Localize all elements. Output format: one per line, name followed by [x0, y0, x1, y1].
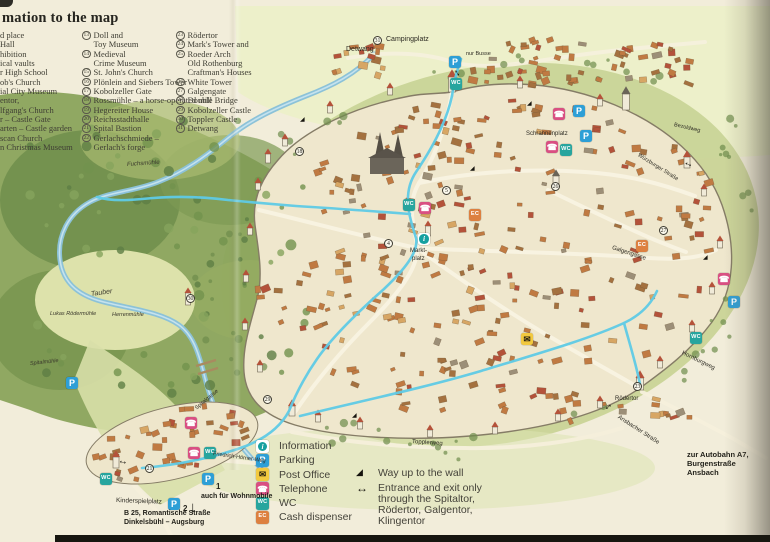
cash-dispenser-icon: EC: [256, 511, 269, 524]
map-number-marker: 30: [186, 294, 195, 303]
wc-icon: WC: [690, 332, 702, 344]
map-label: Rödertor: [615, 396, 638, 402]
entrance-note: ↔ Entrance and exit onlythrough the Spit…: [356, 483, 482, 527]
wall-access-icon: ◢: [356, 467, 370, 478]
legend-item-number: 30: [176, 115, 185, 124]
telephone-icon: ☎: [419, 202, 431, 214]
wc-icon: WC: [560, 144, 572, 156]
map-number-marker: 31: [373, 36, 382, 45]
wall-access-note: ◢ Way up to the wall: [356, 467, 482, 479]
map-label: platz: [412, 256, 425, 262]
legend-item: 31 Detwang: [176, 124, 252, 133]
legend-item-number: 26: [176, 78, 185, 87]
map-number-marker: 18: [295, 147, 304, 156]
legend-item-number: 28: [176, 96, 185, 105]
map-label: ◢: [470, 165, 475, 172]
telephone-icon: ☎: [718, 273, 730, 285]
key-item: i Information: [256, 440, 352, 453]
legend-item-number: 27: [176, 87, 185, 96]
parking-icon: P: [580, 130, 592, 142]
map-label: auch für Wohnmobile: [201, 493, 272, 500]
legend-left-column: d placeHallhibitionical vaultsr High Sch…: [0, 31, 73, 152]
map-number-marker: 29: [263, 395, 272, 404]
map-page: mation to the map d placeHallhibitionica…: [0, 0, 770, 542]
information-icon: i: [256, 440, 269, 453]
parking-icon: P: [202, 473, 214, 485]
post-office-icon: ✉: [256, 468, 269, 481]
legend-item: n Christmas Museum: [0, 143, 73, 152]
legend-item: Gerlach's forge: [82, 143, 212, 152]
map-label: B 25, Romantische Straße: [124, 510, 210, 517]
legend-item-number: 14: [82, 50, 91, 59]
telephone-icon: ☎: [553, 108, 565, 120]
key-item: EC Cash dispenser: [256, 511, 352, 524]
key-item-label: Information: [279, 440, 332, 452]
entrance-note-lines: Entrance and exit onlythrough the Spital…: [378, 483, 482, 527]
legend-item-number: 29: [176, 106, 185, 115]
map-key-notes: ◢ Way up to the wall ↔ Entrance and exit…: [356, 467, 482, 527]
map-label: Schrannenplatz: [526, 131, 568, 137]
map-label: Herrenmühle: [112, 312, 144, 318]
key-item-label: WC: [279, 497, 297, 509]
legend-item-label: Gerlach's forge: [94, 143, 146, 152]
legend-item-number: 21: [82, 124, 91, 133]
map-label: Campingplatz: [386, 36, 429, 43]
entrance-note-line: Klingentor: [378, 516, 482, 527]
legend-item-number: 23: [176, 31, 185, 40]
map-label: Lukas Rödermühle: [50, 311, 96, 317]
parking-icon: P: [168, 498, 180, 510]
legend-item-number: 24: [176, 40, 185, 49]
legend-item-number: 20: [82, 115, 91, 124]
map-number-marker: 27: [659, 226, 668, 235]
map-label: ◢: [300, 116, 305, 123]
map-label: 2: [183, 504, 187, 513]
key-item-label: Telephone: [279, 483, 327, 495]
post-office-icon: ✉: [521, 333, 533, 345]
telephone-icon: ☎: [185, 417, 197, 429]
legend-item-number: 19: [82, 106, 91, 115]
wc-icon: WC: [100, 473, 112, 485]
parking-icon: P: [66, 377, 78, 389]
legend-item-label: Detwang: [188, 124, 219, 133]
map-label: ◢: [352, 412, 357, 419]
legend-item-number: 16: [82, 78, 91, 87]
map-label: nur Busse: [466, 51, 491, 57]
legend-item-number: 31: [176, 124, 185, 133]
wall-access-label: Way up to the wall: [378, 467, 463, 479]
map-label: ◢: [527, 100, 532, 107]
legend-item-number: 13: [82, 31, 91, 40]
key-item: P Parking: [256, 454, 352, 467]
entrance-arrow-icon: ↔: [356, 483, 370, 494]
map-label: Detwang: [346, 46, 374, 53]
key-item-label: Post Office: [279, 469, 330, 481]
map-label: Burgenstraße: [687, 459, 736, 468]
map-number-marker: 21: [145, 464, 154, 473]
map-label: ◢: [703, 254, 708, 261]
map-label: Ansbach: [687, 468, 719, 477]
cash-dispenser-icon: EC: [636, 240, 648, 252]
map-label: 1: [216, 482, 220, 491]
map-key: i Information P Parking ✉ Post Office ☎ …: [256, 440, 352, 524]
legend-right-column: 23 Rödertor 24 Mark's Tower and 25 Roede…: [176, 31, 252, 134]
key-item-label: Cash dispenser: [279, 511, 352, 523]
scan-bottom-edge: [55, 535, 770, 542]
map-number-marker: 23: [633, 382, 642, 391]
legend-item-number: 25: [176, 50, 185, 59]
map-number-marker: 4: [384, 239, 393, 248]
map-label: Dinkelsbühl – Augsburg: [124, 519, 204, 526]
key-item-label: Parking: [279, 454, 315, 466]
map-label: ↓: [189, 499, 197, 516]
map-label: ↔: [117, 455, 129, 468]
map-number-marker: 5: [442, 186, 451, 195]
legend-item-number: 15: [82, 68, 91, 77]
map-number-marker: 26: [551, 182, 560, 191]
telephone-icon: ☎: [546, 141, 558, 153]
legend-item-number: 22: [82, 134, 91, 143]
legend-item-number: 18: [82, 96, 91, 105]
legend-item-number: 17: [82, 87, 91, 96]
map-label: Markt-: [410, 248, 427, 254]
parking-icon: P: [573, 105, 585, 117]
information-icon: i: [418, 233, 430, 245]
telephone-icon: ☎: [188, 447, 200, 459]
parking-icon: P: [728, 296, 740, 308]
key-item: ✉ Post Office: [256, 468, 352, 481]
cash-dispenser-icon: EC: [469, 209, 481, 221]
map-label: zur Autobahn A7,: [687, 450, 749, 459]
wc-icon: WC: [403, 199, 415, 211]
page-title: mation to the map: [2, 10, 119, 27]
